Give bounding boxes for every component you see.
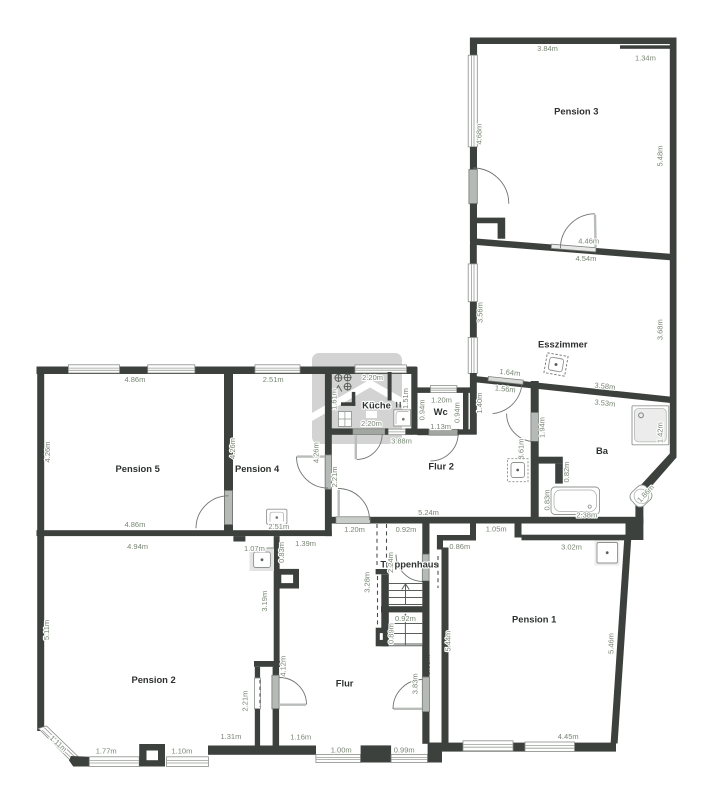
- svg-text:4.26m: 4.26m: [312, 442, 321, 463]
- svg-text:Flur: Flur: [336, 677, 354, 688]
- svg-text:2.38m: 2.38m: [576, 510, 597, 519]
- svg-text:1.05m: 1.05m: [486, 525, 507, 534]
- svg-text:0.92m: 0.92m: [395, 614, 416, 623]
- svg-text:Pension 3: Pension 3: [554, 106, 598, 117]
- svg-text:4.86m: 4.86m: [124, 520, 145, 529]
- svg-text:3.28m: 3.28m: [363, 572, 372, 593]
- svg-text:3.83m: 3.83m: [410, 673, 419, 694]
- svg-text:4.45m: 4.45m: [558, 732, 579, 741]
- svg-text:0.94m: 0.94m: [418, 399, 427, 420]
- svg-text:2.20m: 2.20m: [362, 373, 383, 382]
- svg-text:Pension 5: Pension 5: [116, 463, 160, 474]
- svg-text:4.94m: 4.94m: [127, 542, 148, 551]
- svg-text:1.00m: 1.00m: [331, 746, 352, 755]
- svg-text:1.39m: 1.39m: [295, 539, 316, 548]
- svg-text:2.21m: 2.21m: [241, 691, 250, 712]
- svg-text:1.20m: 1.20m: [431, 396, 452, 405]
- svg-text:0.99m: 0.99m: [394, 746, 415, 755]
- svg-text:3.19m: 3.19m: [260, 591, 269, 612]
- svg-text:1.40m: 1.40m: [475, 393, 484, 414]
- svg-text:0.83m: 0.83m: [277, 542, 286, 563]
- svg-text:1.51m: 1.51m: [401, 388, 410, 409]
- svg-text:1.13m: 1.13m: [430, 422, 451, 431]
- svg-text:1.10m: 1.10m: [171, 746, 192, 755]
- svg-text:2.51m: 2.51m: [263, 375, 284, 384]
- svg-text:0.86m: 0.86m: [449, 542, 470, 551]
- svg-text:2.20m: 2.20m: [361, 419, 382, 428]
- svg-text:Flur 2: Flur 2: [428, 461, 454, 472]
- svg-text:5.44m: 5.44m: [444, 631, 453, 652]
- svg-text:4.68m: 4.68m: [474, 124, 483, 145]
- svg-text:1.20m: 1.20m: [344, 525, 365, 534]
- svg-text:2.21m: 2.21m: [330, 466, 339, 487]
- svg-text:1.31m: 1.31m: [220, 732, 241, 741]
- svg-text:Ba: Ba: [596, 445, 609, 456]
- svg-text:0.92m: 0.92m: [396, 525, 417, 534]
- svg-text:4.26m: 4.26m: [43, 442, 52, 463]
- svg-text:3.02m: 3.02m: [561, 542, 582, 551]
- svg-text:2.51m: 2.51m: [268, 522, 289, 531]
- svg-text:0.83m: 0.83m: [543, 490, 552, 511]
- svg-text:3.88m: 3.88m: [391, 436, 412, 445]
- svg-text:5.11m: 5.11m: [42, 620, 51, 640]
- svg-text:3.61m: 3.61m: [517, 439, 526, 460]
- svg-text:3.84m: 3.84m: [537, 44, 558, 53]
- svg-text:0.82m: 0.82m: [562, 462, 571, 483]
- svg-text:5.46m: 5.46m: [607, 633, 616, 654]
- svg-text:4.86m: 4.86m: [124, 375, 145, 384]
- svg-text:4.12m: 4.12m: [279, 656, 288, 677]
- svg-text:Pension 2: Pension 2: [131, 674, 175, 685]
- svg-text:Wc: Wc: [434, 406, 448, 417]
- svg-text:1.34m: 1.34m: [635, 53, 656, 62]
- svg-text:Küche: Küche: [362, 400, 391, 411]
- svg-text:1.07m: 1.07m: [244, 544, 265, 553]
- svg-text:4.46m: 4.46m: [578, 237, 599, 246]
- svg-text:3.68m: 3.68m: [656, 319, 665, 340]
- svg-text:1.94m: 1.94m: [538, 417, 547, 438]
- svg-text:2.24m: 2.24m: [386, 552, 395, 573]
- svg-text:0.89m: 0.89m: [387, 623, 396, 644]
- svg-text:3.56m: 3.56m: [476, 302, 485, 323]
- svg-text:5.24m: 5.24m: [418, 508, 439, 517]
- svg-text:4.54m: 4.54m: [575, 254, 596, 263]
- svg-text:0.94m: 0.94m: [453, 402, 462, 423]
- svg-text:4.26m: 4.26m: [228, 438, 237, 459]
- svg-text:5.48m: 5.48m: [656, 146, 665, 167]
- svg-text:1.77m: 1.77m: [96, 746, 117, 755]
- svg-text:Pension 4: Pension 4: [235, 463, 280, 474]
- svg-text:Pension 1: Pension 1: [512, 613, 556, 624]
- svg-text:1.42m: 1.42m: [656, 422, 665, 443]
- svg-text:Esszimmer: Esszimmer: [538, 339, 588, 350]
- svg-text:1.16m: 1.16m: [290, 733, 311, 742]
